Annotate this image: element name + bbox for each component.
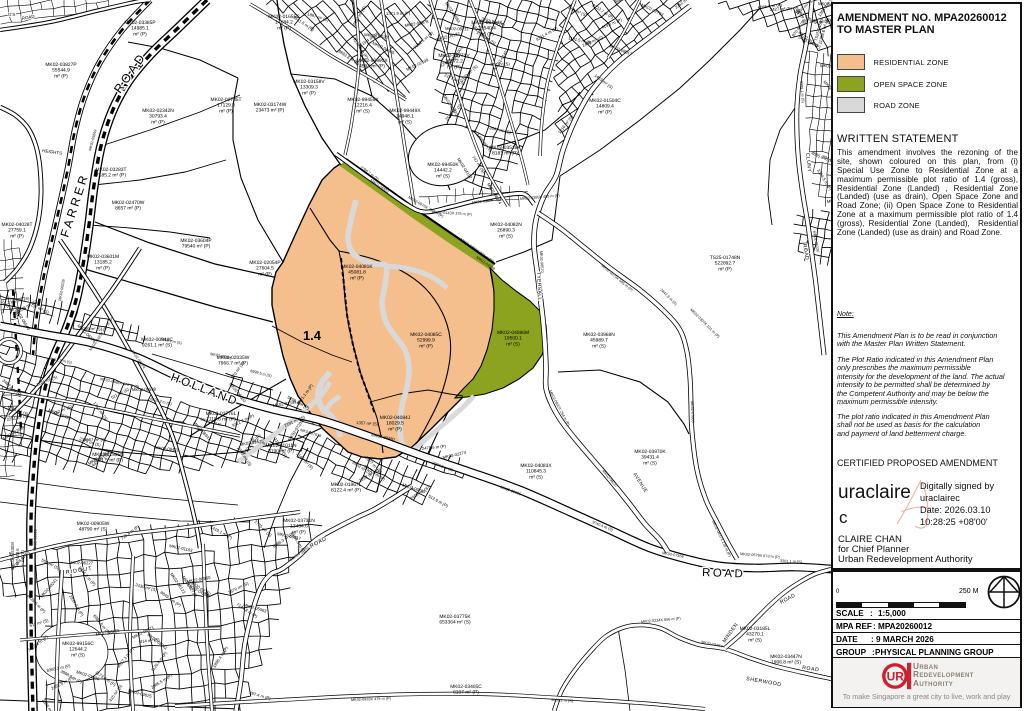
svg-text:MK02-06926: MK02-06926: [33, 529, 38, 551]
svg-text:ROAD: ROAD: [702, 567, 746, 581]
svg-text:MK02-01967L8122.4 m² (P): MK02-01967L8122.4 m² (P): [331, 482, 362, 494]
svg-text:G'S: G'S: [8, 12, 15, 17]
svg-text:747 m² (S): 747 m² (S): [490, 61, 511, 67]
svg-text:MK02-00905W48790 m² (S): MK02-00905W48790 m² (S): [77, 521, 110, 533]
svg-text:MK02-03775K653364 m² (S): MK02-03775K653364 m² (S): [439, 614, 471, 626]
svg-text:MK02-06227: MK02-06227: [69, 560, 94, 565]
svg-text:MK02-08211: MK02-08211: [445, 26, 469, 31]
svg-text:MK02-03174W23473 m² (P): MK02-03174W23473 m² (P): [254, 102, 287, 114]
svg-text:MK02-03405C6197 m² (P): MK02-03405C6197 m² (P): [450, 684, 482, 696]
svg-text:2567 m² (S): 2567 m² (S): [84, 437, 107, 442]
svg-text:1371.9 m (P): 1371.9 m (P): [386, 11, 411, 16]
svg-text:2080 m² (S): 2080 m² (S): [80, 326, 103, 331]
svg-text:MK02-02470W8657 m² (P): MK02-02470W8657 m² (P): [112, 200, 145, 212]
svg-text:MK02-03604P79540 m² (P): MK02-03604P79540 m² (P): [180, 238, 211, 250]
svg-text:1.4: 1.4: [303, 328, 322, 343]
svg-text:MK02-03518K8181 m² (P): MK02-03518K8181 m² (P): [489, 145, 521, 157]
svg-text:UR: UR: [887, 670, 905, 684]
svg-text:MK02-07865: MK02-07865: [690, 401, 695, 423]
svg-text:MK02-03283T7185.2 m² (P): MK02-03283T7185.2 m² (P): [96, 167, 127, 179]
svg-text:MK02-99990X4594 m² (P): MK02-99990X4594 m² (P): [356, 58, 388, 70]
svg-text:MK02-03447N1906.8 m² (S): MK02-03447N1906.8 m² (S): [770, 654, 802, 666]
